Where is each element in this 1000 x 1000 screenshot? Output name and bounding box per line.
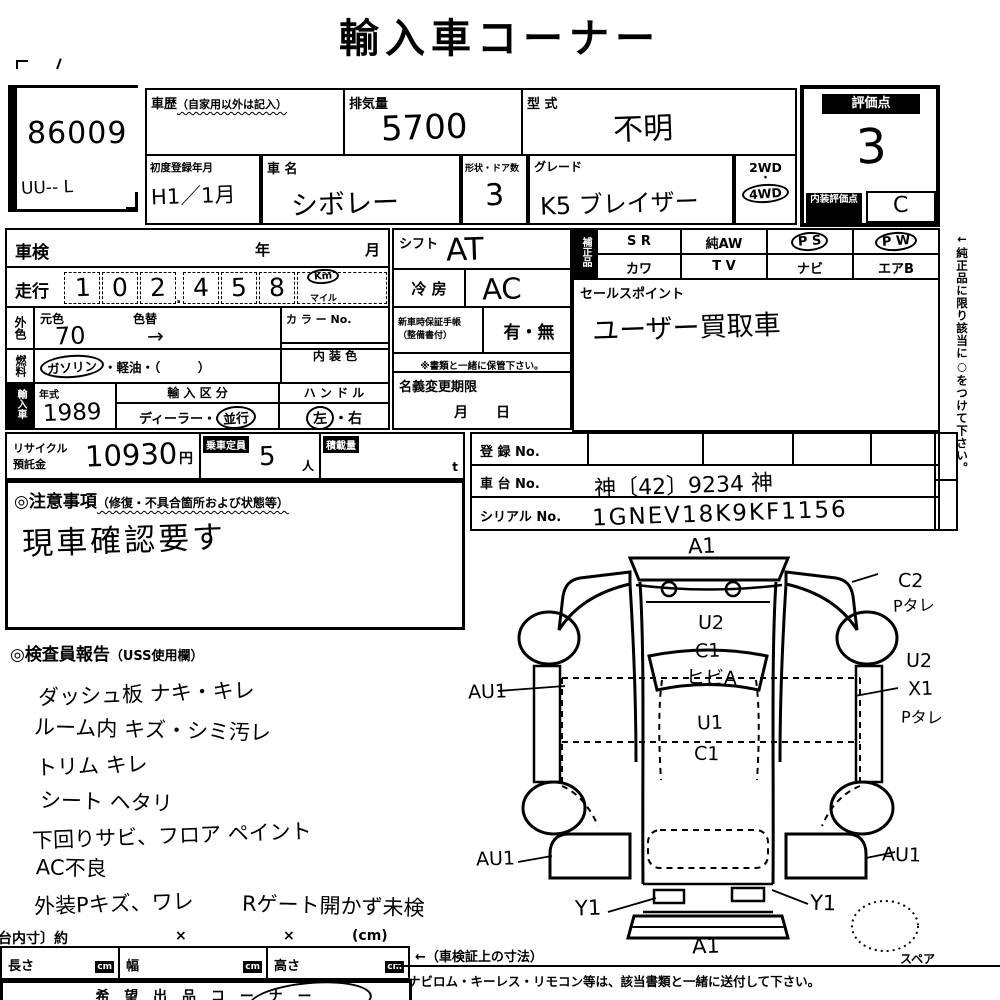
mileage-label: 走行	[15, 277, 49, 302]
handle-right-option: 右	[348, 411, 362, 427]
dims-header: 〔荷台内寸〕約	[0, 928, 68, 948]
drive-separator: ・	[736, 175, 795, 183]
cell-handle: ハ ン ド ル 左・右	[278, 382, 390, 430]
warranty-label-line1: 新車時保証手帳	[398, 315, 482, 328]
dims-width-unit: cm	[243, 961, 262, 973]
score-label: 評価点	[822, 94, 920, 114]
interior-color-label: 内 装 色	[313, 347, 357, 364]
import-group-label: 輸入車	[5, 382, 35, 430]
mileage-digit: 8	[268, 273, 285, 303]
cell-ac-label: 冷 房	[392, 268, 466, 308]
equipment-group-label: 補正品	[572, 228, 598, 280]
cell-grade: グレード K5 ブレイザー	[528, 154, 734, 225]
mark-au1-left-rear: AU1	[476, 847, 516, 870]
dims-height-unit: cm	[385, 961, 404, 973]
lot-box-bracket	[126, 192, 138, 210]
warranty-note: ※書類と一緒に保管下さい。	[420, 358, 543, 372]
repaint-value: →	[147, 324, 165, 349]
mark-a1-rear: A1	[692, 934, 721, 959]
handle-left-selected: 左	[305, 405, 335, 431]
handle-separator: ・	[334, 411, 348, 427]
equip-airbag: エアB	[852, 253, 940, 280]
report-line: 下回りサビ、フロア ペイント	[32, 815, 313, 855]
cell-displacement: 排気量 5700	[343, 88, 523, 156]
equip-ps-selected: P S	[791, 231, 830, 253]
sales-point-label: セールスポイント	[580, 283, 684, 302]
name-change-value: 月 日	[454, 402, 510, 422]
cell-history: 車歴（自家用以外は記入）	[145, 88, 345, 156]
equip-navi-text: ナビ	[797, 258, 823, 277]
dims-length-cell: 長さ cm	[0, 946, 120, 980]
drive-4wd-selected: 4WD	[741, 182, 789, 204]
cell-car-name: 車 名 シボレー	[261, 154, 461, 225]
report-extra-note: Rゲート開かず未検	[242, 888, 425, 923]
recycle-label-line2: 預託金	[13, 456, 67, 472]
equip-ps: P S	[766, 228, 854, 255]
mark-windshield-crack: ヒビA	[686, 662, 738, 690]
mark-u1-roof: U1	[697, 712, 724, 735]
car-name-value: シボレー	[290, 180, 399, 223]
cell-warranty-note: ※書類と一緒に保管下さい。	[392, 352, 572, 373]
mark-x1-right: X1	[908, 678, 934, 701]
name-change-label: 名義変更期限	[399, 376, 477, 395]
grade-value: K5 ブレイザー	[539, 181, 699, 222]
car-diagram	[470, 528, 950, 956]
cell-model: 型 式 不明	[521, 88, 797, 156]
caution-note: 現車確認要す	[21, 511, 226, 563]
lot-number: 86009	[27, 116, 127, 151]
score-box: 評価点 3 内装評価点 C	[800, 85, 940, 227]
mark-y1-right: Y1	[810, 891, 837, 916]
reg-no-label: 登 録 No.	[480, 441, 540, 460]
caution-box: ◎注意事項（修復・不具合箇所および状態等） 現車確認要す	[5, 480, 465, 630]
equip-pw: P W	[852, 228, 940, 255]
equip-airbag-text: エアB	[878, 258, 914, 277]
cell-fuel-options: ガソリン・軽油・（ ）	[33, 348, 282, 384]
load-label: 積載量	[323, 436, 359, 453]
report-header-sub: （USS使用欄）	[110, 649, 204, 664]
report-line: ダッシュ板 ナキ・キレ	[38, 674, 256, 712]
handle-label: ハ ン ド ル	[280, 384, 388, 404]
dims-width-cell: 幅 cm	[118, 946, 268, 980]
row-recycle: リサイクル 預託金 10930 円 乗車定員 5 人 積載量 t	[5, 432, 465, 480]
row-reg-no: 登 録 No.	[470, 432, 940, 466]
cell-first-reg: 初度登録年月 H1／1月	[145, 154, 261, 225]
equipment-group-text: 補正品	[572, 228, 598, 276]
warranty-label-line2: （整備書付）	[398, 328, 482, 341]
year-model-value: 1989	[43, 399, 102, 427]
report-line: AC不良	[36, 851, 107, 883]
first-reg-label: 初度登録年月	[150, 160, 213, 175]
row-mileage: 走行 1 0 2 . 4 5 8 Km マイル	[5, 266, 390, 308]
report-line: シート ヘタリ	[40, 784, 173, 817]
dims-unit: (cm)	[352, 928, 388, 944]
cell-warranty: 新車時保証手帳 （整備書付） 有・無	[392, 306, 572, 354]
shift-value: AT	[445, 231, 484, 268]
base-color-value: 70	[55, 321, 87, 350]
history-sub-label: （自家用以外は記入）	[177, 98, 287, 111]
mark-c1-roof: C1	[694, 743, 720, 766]
mark-ptare-right-top: Pタレ	[893, 591, 935, 616]
capacity-value: 5	[258, 442, 276, 473]
footer-note: ナビロム・キーレス・リモコン等は、該当書類と一緒に送付して下さい。	[408, 971, 820, 990]
interior-score-value: C	[893, 193, 909, 219]
import-separator: ・	[203, 412, 216, 427]
sales-point-value: ユーザー買取車	[591, 303, 781, 349]
mileage-digit: 1	[74, 273, 91, 303]
cell-color-values: 元色 70 色替 →	[33, 306, 282, 350]
shape-doors-label: 形状・ドア数	[465, 161, 519, 174]
fuel-label: 燃料	[8, 350, 32, 382]
report-line: ルーム内 キズ・シミ汚レ	[34, 711, 272, 747]
mileage-digit: 2	[149, 273, 166, 303]
page-title: 輸入車コーナー	[0, 6, 1000, 64]
dims-length-label: 長さ	[8, 955, 34, 974]
ac-label: 冷 房	[411, 278, 446, 299]
cell-name-change: 名義変更期限 月 日	[392, 371, 572, 430]
dims-length-unit: cm	[95, 961, 114, 973]
auction-sheet: 輸入車コーナー 86009 UU-- L 車歴（自家用以外は記入） 排気量 57…	[0, 0, 1000, 1000]
cell-drive-type: 2WD ・ 4WD	[734, 154, 797, 225]
ext-color-label: 外色	[7, 308, 33, 348]
mileage-digit: 5	[230, 273, 247, 303]
mark-a1-front: A1	[688, 534, 717, 559]
shape-doors-value: 3	[484, 178, 504, 214]
serial-no-label: シリアル No.	[480, 506, 561, 525]
mileage-digit: 4	[192, 273, 209, 303]
equip-sr: S R	[596, 228, 682, 255]
mark-au1-left-front: AU1	[468, 680, 508, 703]
mark-c2-right: C2	[898, 570, 924, 593]
first-reg-value: H1／1月	[151, 179, 237, 212]
equip-sr-text: S R	[627, 234, 651, 249]
mark-y1-left: Y1	[575, 896, 602, 921]
recycle-yen: 円	[179, 448, 193, 468]
cell-shape-doors: 形状・ドア数 3	[461, 154, 528, 225]
equip-pw-selected: P W	[874, 231, 918, 253]
equip-navi: ナビ	[766, 253, 854, 280]
chassis-no-label: 車 台 No.	[480, 473, 540, 492]
interior-score-cell: C	[866, 191, 936, 223]
mileage-digit: 0	[111, 273, 128, 303]
serial-no-value: 1GNEV18K9KF1156	[592, 497, 849, 532]
fuel-gasoline-selected: ガソリン	[39, 353, 104, 380]
recycle-value: 10930	[84, 436, 177, 473]
displacement-value: 5700	[380, 107, 468, 150]
import-parallel-selected: 並行	[215, 405, 257, 431]
sales-point-box: セールスポイント ユーザー買取車	[572, 278, 940, 432]
mileage-unit-mile: マイル	[310, 291, 337, 304]
equip-kawa-text: カワ	[626, 258, 652, 277]
ac-value: AC	[481, 271, 522, 306]
fuel-other-options: ・軽油・（ ）	[104, 360, 210, 375]
shaken-month-label: 月	[365, 239, 380, 260]
row-chassis-no: 車 台 No. 神〔42〕9234 神	[470, 464, 940, 498]
crop-mark-left	[16, 60, 28, 69]
report-line: トリム キレ	[36, 748, 149, 782]
lot-note: UU-- L	[21, 177, 74, 199]
caution-header-sub: （修復・不具合箇所および状態等）	[97, 496, 289, 510]
row-shaken: 車検 年 月	[5, 228, 390, 268]
cell-ac-value: AC	[464, 268, 572, 308]
color-no-label: カ ラ ー No.	[286, 311, 351, 327]
dims-x1: ×	[175, 928, 187, 944]
cell-import-class: 輸 入 区 分 ディーラー・並行	[115, 382, 280, 430]
year-model-label: 年式	[39, 386, 59, 401]
shift-label: シフト	[399, 233, 438, 252]
cell-interior-color: 内 装 色	[280, 342, 390, 384]
dims-height-cell: 高さ cm	[266, 946, 410, 980]
capacity-unit: 人	[302, 457, 314, 474]
history-label: 車歴	[151, 93, 177, 112]
report-line: 外装Pキズ、ワレ	[34, 885, 195, 921]
capacity-label: 乗車定員	[203, 436, 249, 453]
mark-u2-hood: U2	[698, 612, 725, 635]
warranty-value: 有・無	[504, 318, 555, 343]
shaken-year-label: 年	[255, 239, 270, 260]
import-class-label: 輸 入 区 分	[117, 384, 278, 404]
model-value: 不明	[612, 103, 673, 149]
grade-label: グレード	[534, 158, 582, 175]
cell-shift: シフト AT	[392, 228, 572, 270]
load-unit: t	[452, 460, 458, 474]
equip-tv-text: T V	[712, 259, 735, 274]
row-serial-no: シリアル No. 1GNEV18K9KF1156	[470, 496, 940, 531]
cell-year-model: 年式 1989	[33, 382, 117, 430]
equip-aw-text: 純AW	[706, 233, 743, 252]
report-header: ◎検査員報告（USS使用欄）	[10, 640, 204, 665]
lot-box: 86009 UU-- L	[8, 85, 138, 212]
report-header-main: ◎検査員報告	[10, 645, 110, 665]
import-group-text: 輸入車	[5, 382, 35, 426]
equip-aw: 純AW	[680, 228, 768, 255]
spare-label: スペア	[900, 950, 935, 967]
equip-kawa: カワ	[596, 253, 682, 280]
mark-c1-hood: C1	[695, 640, 721, 663]
mark-au1-right-rear: AU1	[882, 843, 922, 866]
interior-score-label: 内装評価点	[806, 193, 862, 225]
dims-width-label: 幅	[126, 955, 139, 974]
dims-height-label: 高さ	[274, 955, 300, 974]
car-name-label: 車 名	[267, 158, 298, 177]
recycle-label-line1: リサイクル	[13, 440, 67, 456]
model-label: 型 式	[527, 93, 558, 112]
cell-ext-color-group: 外色	[5, 306, 35, 350]
shaken-label: 車検	[15, 238, 49, 263]
dims-x2: ×	[283, 928, 295, 944]
caution-header: ◎注意事項	[14, 492, 97, 512]
score-value: 3	[855, 118, 887, 175]
mark-u2-right: U2	[906, 650, 933, 673]
mark-ptare-right-mid: Pタレ	[901, 703, 943, 728]
equip-tv: T V	[680, 253, 768, 280]
cell-fuel-group: 燃料	[5, 348, 35, 384]
import-dealer-option: ディーラー	[139, 412, 203, 427]
